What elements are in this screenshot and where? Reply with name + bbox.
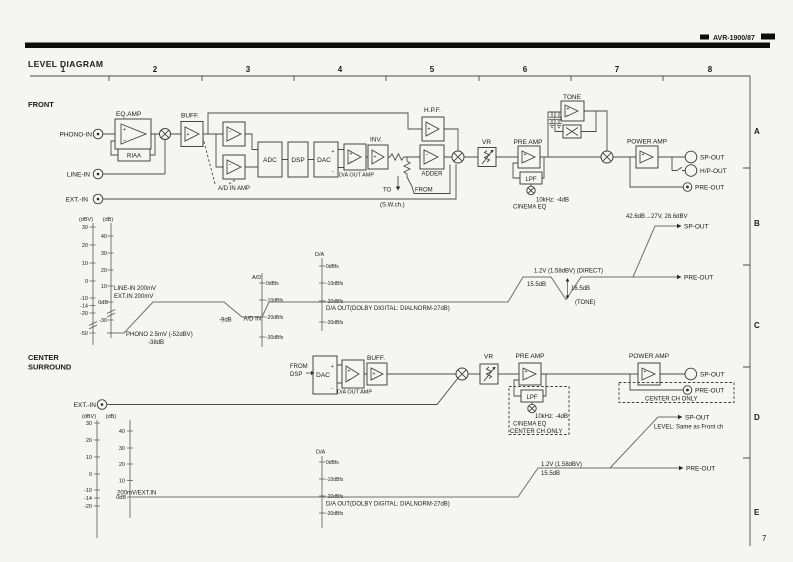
- surround-section-label: SURROUND: [28, 363, 72, 372]
- pre-out-jack-icon: PRE-OUT: [683, 183, 724, 192]
- da-tick: -10dBfs: [326, 281, 344, 287]
- dbv-tick: -14: [84, 496, 92, 502]
- dbv-tick: -14: [80, 304, 88, 310]
- ext-in-jack-icon: EXT.-IN: [66, 194, 103, 204]
- eq-amp: EQ.AMP + − RIAA: [111, 111, 155, 161]
- hpf-label: H.P.F.: [424, 107, 441, 114]
- inv-label: INV.: [370, 137, 382, 144]
- dbv-tick: 10: [82, 261, 88, 267]
- db-tick: 40: [101, 234, 107, 240]
- db-tick: 10: [119, 479, 125, 485]
- input-level-label: 200mV/EXT.IN: [117, 491, 156, 497]
- tone-label: TONE: [563, 94, 582, 101]
- ad-drop-label: -9dB: [219, 318, 232, 324]
- buff-label: BUFF.: [181, 113, 199, 120]
- col-number: 8: [708, 65, 713, 74]
- power-amp: POWER AMP +: [629, 353, 669, 385]
- center-level-chart: (dBV) (dB) 30 20 10 0 -10 -14 -20 40 30 …: [82, 414, 723, 538]
- lpf-label: LPF: [525, 177, 536, 183]
- db-tick: -30: [99, 318, 107, 324]
- riaa-label: RIAA: [127, 154, 141, 160]
- da-tick: 0dBfs: [326, 460, 339, 466]
- dac-label: DAC: [316, 372, 330, 379]
- da-tick: 0dBfs: [326, 264, 339, 270]
- front-diagram: FRONT PHONO-IN LINE-IN EXT.-IN EQ.AMP + …: [28, 94, 727, 211]
- plus-sign: +: [525, 369, 528, 375]
- lpf-label: LPF: [526, 395, 537, 401]
- dbv-tick: -20: [84, 504, 92, 510]
- ext-in-level-label: EXT.IN 200mV: [114, 294, 153, 300]
- pre-out-label: PRE-OUT: [695, 185, 724, 192]
- sp-out-jack-icon: SP-OUT: [685, 151, 724, 163]
- da-tick: -30dBfs: [326, 320, 344, 326]
- plus-sign: +: [567, 107, 570, 113]
- model-label: AVR-1900/87: [713, 35, 755, 42]
- ext-in-label: EXT.-IN: [66, 197, 89, 204]
- buffer-amp: BUFF. +: [181, 113, 203, 147]
- pre-out-label: PRE-OUT: [695, 388, 724, 395]
- sw-ch-label: (S.W.ch.): [380, 203, 405, 209]
- center-ext-in-label: EXT.-IN: [74, 402, 97, 409]
- db-tick: 20: [101, 268, 107, 274]
- cinema-eq-freq-label: 10kHz: -4dB: [536, 198, 569, 204]
- da-out-amp: + − D/A OUT AMP: [339, 144, 374, 179]
- dbv-tick: -10: [80, 296, 88, 302]
- ext-in-jack-icon: EXT.-IN: [74, 400, 107, 410]
- ad-in-amps: − − A/D IN AMP: [203, 122, 250, 192]
- chart-sp-out-label: SP-OUT: [684, 224, 709, 231]
- cinema-eq-only-label: CENTER CH ONLY: [510, 429, 563, 435]
- db-axis-caption: (dB): [103, 217, 114, 223]
- chart-sp-out-label: SP-OUT: [685, 415, 710, 422]
- ad-tick: -20dBfs: [266, 315, 284, 321]
- hp-out-jack-icon: H/P-OUT: [672, 165, 727, 177]
- db-tick: 10: [101, 284, 107, 290]
- cinema-eq-freq-label: 10kHz: -4dB: [535, 414, 568, 420]
- plus-sign: +: [642, 152, 645, 158]
- center-section-label: CENTER: [28, 353, 59, 362]
- plus-sign: +: [187, 132, 190, 138]
- row-letter: D: [754, 413, 760, 422]
- da-axis-caption: D/A: [315, 252, 325, 258]
- dbv-tick: 30: [86, 421, 92, 427]
- da-tick: -10dBfs: [326, 477, 344, 483]
- minus-sign: −: [350, 160, 353, 166]
- minus-sign: −: [524, 160, 527, 166]
- plus-sign: +: [350, 152, 353, 158]
- plus-sign: +: [348, 369, 351, 375]
- minus-sign: −: [229, 129, 232, 135]
- volume-vr: VR: [478, 139, 496, 167]
- sp-out-jack-icon: SP-OUT: [685, 368, 725, 380]
- plus-sign: +: [123, 127, 126, 133]
- sw-to-label: TO: [383, 188, 392, 194]
- da-out-amp-label: D/A OUT AMP: [337, 390, 372, 396]
- col-number: 5: [430, 65, 435, 74]
- tone-level-label: (TONE): [575, 300, 596, 306]
- center-diagram: CENTER SURROUND FROM DSP EXT.-IN DAC + −…: [28, 353, 734, 435]
- pre-amp: PRE AMP + − LPF: [514, 353, 546, 413]
- vr-label: VR: [484, 354, 493, 361]
- dbv-axis-caption: (dBV): [79, 217, 93, 223]
- col-number: 2: [153, 65, 158, 74]
- pre-amp: PRE AMP + − LPF 10kHz: -4dB CINEMA EQ: [513, 139, 569, 211]
- cinema-eq-label: CINEMA EQ: [513, 422, 547, 428]
- phono-level-label: PHONO 2.5mV (-52dBV): [126, 332, 193, 338]
- minus-sign: −: [123, 139, 126, 145]
- cinema-eq-label: CINEMA EQ: [513, 205, 547, 211]
- scanned-manual-page: AVR-1900/87 LEVEL DIAGRAM 1 2 3 4 5 6 7 …: [0, 0, 793, 562]
- minus-sign: −: [332, 169, 335, 175]
- adder-amp: − ADDER: [420, 145, 444, 178]
- da-out-level-label: D/A OUT(DOLBY DIGITAL: DIALNORM-27dB): [326, 502, 450, 508]
- dbv-tick: 20: [82, 243, 88, 249]
- sp-gain-label: 42.6dB→27V, 28.6dBV: [626, 214, 688, 220]
- plus-sign: +: [524, 152, 527, 158]
- row-letter: E: [754, 508, 760, 517]
- sw-channel-switch: TO FROM (S.W.ch.): [380, 154, 450, 209]
- phono-gain-label: -38dB: [148, 340, 164, 346]
- ad-axis-caption: A/D: [252, 275, 261, 281]
- pre-out-only-label: CENTER CH ONLY: [645, 397, 698, 403]
- page-number: 7: [762, 534, 767, 543]
- dbv-tick: -10: [84, 488, 92, 494]
- db-tick: 30: [101, 251, 107, 257]
- power-amp-label: POWER AMP: [629, 353, 669, 360]
- row-letter: A: [754, 127, 760, 136]
- mixer-icon: [456, 368, 468, 380]
- mixer-icon: [160, 129, 171, 140]
- da-axis-caption: D/A: [316, 450, 326, 456]
- da-out-level-label: D/A OUT(DOLBY DIGITAL: DIALNORM-27dB): [326, 306, 450, 312]
- dac-block: DAC + −: [313, 356, 337, 394]
- from-dsp-label: FROM: [290, 364, 308, 370]
- db-tick: 20: [119, 462, 125, 468]
- front-section-label: FRONT: [28, 100, 54, 109]
- minus-sign: −: [229, 162, 232, 168]
- ad-in-label: A/D IN: [244, 317, 262, 323]
- tone-dip-label: 16.5dB: [571, 286, 590, 292]
- pre-gain-label: 15.5dB: [541, 471, 560, 477]
- ad-in-amp-label: A/D IN AMP: [218, 186, 250, 192]
- dsp-block: DSP: [288, 142, 308, 177]
- front-level-chart: (dBV) (dB) 30 20 10 0 -10 -14 -20 -50 40…: [79, 214, 713, 347]
- da-out-amp-label: D/A OUT AMP: [339, 173, 374, 179]
- dbv-tick: 0: [85, 279, 88, 285]
- from-dsp-label2: DSP: [290, 372, 302, 378]
- minus-sign: −: [331, 386, 334, 392]
- buff-label: BUFF.: [367, 355, 385, 362]
- mixer-icon: [601, 151, 613, 163]
- vr-label: VR: [482, 139, 491, 146]
- ad-tick: 0dBfs: [266, 281, 279, 287]
- db-axis-caption: (dB): [106, 414, 117, 420]
- pre-amp-label: PRE AMP: [516, 353, 545, 360]
- dbv-tick: 0: [89, 472, 92, 478]
- line-in-jack-icon: LINE-IN: [67, 169, 103, 179]
- phono-in-label: PHONO-IN: [60, 132, 93, 139]
- da-tick: -30dBfs: [326, 511, 344, 517]
- line-in-label: LINE-IN: [67, 172, 90, 179]
- col-number: 4: [338, 65, 343, 74]
- plus-sign: +: [331, 364, 334, 370]
- dsp-label: DSP: [291, 157, 304, 164]
- pre-amp-label: PRE AMP: [514, 139, 543, 146]
- ad-tick: -30dBfs: [266, 335, 284, 341]
- pre-out-jack-icon: PRE-OUT: [683, 386, 724, 395]
- dbv-tick: 30: [82, 225, 88, 231]
- minus-sign: −: [567, 113, 570, 119]
- minus-sign: −: [426, 153, 429, 159]
- db-tick: 0dB: [98, 300, 108, 306]
- adc-block: ADC: [258, 142, 282, 177]
- dbv-tick: -20: [80, 311, 88, 317]
- mixer-icon: [452, 151, 464, 163]
- db-tick: 30: [119, 446, 125, 452]
- plus-sign: +: [373, 372, 376, 378]
- direct-level-label: 1.2V (1.58dBV) (DIRECT): [534, 269, 603, 275]
- chart-pre-out-label: PRE-OUT: [686, 466, 715, 473]
- pre-level-label: 1.2V (1.58dBV): [541, 462, 582, 468]
- sp-out-label: SP-OUT: [700, 372, 725, 379]
- row-letter: B: [754, 219, 760, 228]
- plus-sign: +: [332, 149, 335, 155]
- sp-level-note: LEVEL: Same as Front ch: [654, 425, 723, 431]
- sw-from-label: FROM: [415, 188, 433, 194]
- line-in-level-label: LINE-IN 200mV: [114, 286, 156, 292]
- col-number: 3: [246, 65, 251, 74]
- dbv-tick: -50: [80, 331, 88, 337]
- volume-vr: VR: [480, 354, 498, 385]
- minus-sign: −: [525, 377, 528, 383]
- plus-sign: +: [644, 369, 647, 375]
- page-header: AVR-1900/87 LEVEL DIAGRAM: [25, 34, 775, 70]
- minus-sign: −: [348, 377, 351, 383]
- chart-pre-out-label: PRE-OUT: [684, 275, 713, 282]
- adc-label: ADC: [263, 157, 277, 164]
- phono-in-jack-icon: PHONO-IN: [60, 129, 103, 139]
- power-amp: POWER AMP +: [627, 139, 667, 169]
- hpf-amp: H.P.F. +: [422, 107, 444, 141]
- tone-block: TONE + −: [548, 94, 607, 157]
- plus-sign: +: [428, 127, 431, 133]
- sp-out-label: SP-OUT: [700, 155, 725, 162]
- eq-amp-label: EQ.AMP: [116, 111, 141, 118]
- dbv-tick: 20: [86, 438, 92, 444]
- page-title: LEVEL DIAGRAM: [28, 59, 103, 69]
- adder-label: ADDER: [421, 172, 443, 178]
- pre-gain-label: 15.5dB: [527, 282, 546, 288]
- db-tick: 40: [119, 429, 125, 435]
- hp-out-label: H/P-OUT: [700, 168, 727, 175]
- col-number: 6: [523, 65, 528, 74]
- plus-sign: +: [374, 155, 377, 161]
- col-number: 7: [615, 65, 620, 74]
- buffer-amp: BUFF. +: [367, 355, 387, 385]
- row-letter: C: [754, 321, 760, 330]
- dbv-tick: 10: [86, 455, 92, 461]
- dac-block: DAC + −: [314, 142, 338, 177]
- dbv-axis-caption: (dBV): [82, 414, 96, 420]
- power-amp-label: POWER AMP: [627, 139, 667, 146]
- dac-label: DAC: [317, 157, 331, 164]
- inv-amp: INV. +: [368, 137, 388, 170]
- col-number: 1: [61, 65, 66, 74]
